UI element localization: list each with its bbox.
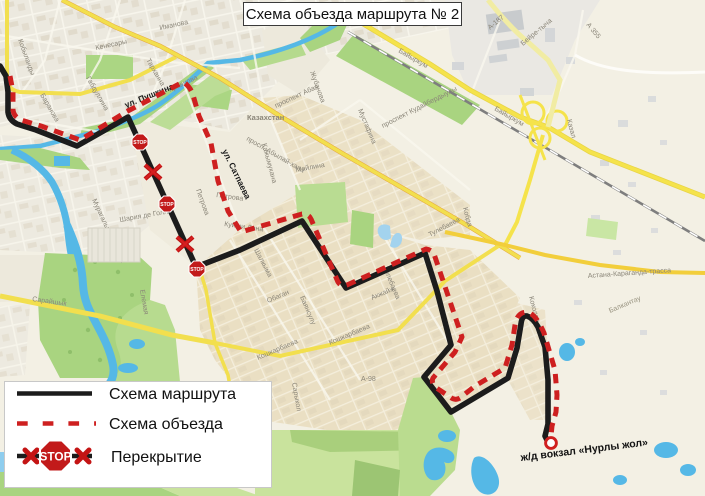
- svg-text:STOP: STOP: [190, 267, 204, 273]
- svg-text:STOP: STOP: [40, 449, 72, 463]
- svg-text:STOP: STOP: [160, 202, 174, 208]
- svg-text:STOP: STOP: [133, 140, 147, 146]
- svg-text:Казахстан: Казахстан: [247, 113, 284, 122]
- svg-text:А-98: А-98: [361, 376, 376, 383]
